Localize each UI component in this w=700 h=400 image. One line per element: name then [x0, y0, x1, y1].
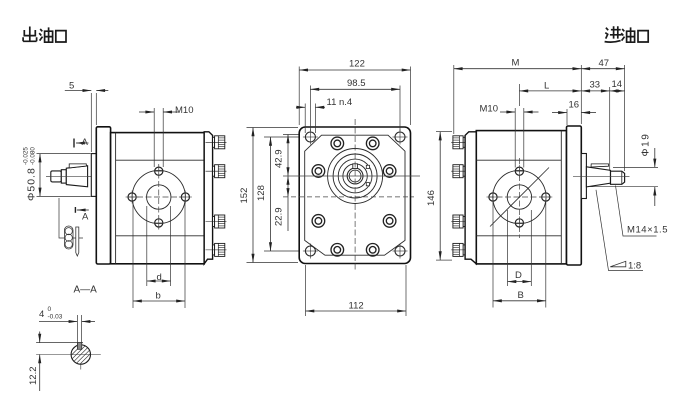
svg-text:14: 14 [612, 79, 623, 90]
svg-text:A—A: A—A [74, 285, 98, 296]
svg-text:b: b [156, 291, 161, 302]
svg-text:47: 47 [599, 58, 610, 69]
svg-text:-0.03: -0.03 [48, 314, 63, 321]
svg-text:152: 152 [239, 188, 250, 204]
svg-text:A: A [82, 137, 89, 148]
svg-text:11 n.4: 11 n.4 [327, 97, 353, 108]
svg-text:D: D [515, 270, 522, 281]
svg-text:42.9: 42.9 [274, 150, 285, 169]
svg-text:B: B [518, 290, 524, 301]
svg-text:12.2: 12.2 [28, 367, 39, 386]
svg-text:Φ19: Φ19 [641, 133, 652, 157]
svg-text:112: 112 [349, 301, 364, 312]
svg-text:98.5: 98.5 [347, 78, 366, 89]
svg-text:M10: M10 [175, 105, 193, 116]
svg-text:22.9: 22.9 [274, 208, 285, 227]
svg-text:-0.025: -0.025 [23, 147, 30, 165]
svg-text:0: 0 [48, 306, 52, 313]
svg-text:M10: M10 [480, 104, 498, 115]
svg-text:M: M [512, 58, 520, 69]
svg-text:A: A [82, 212, 89, 223]
svg-text:4: 4 [39, 309, 44, 320]
svg-text:122: 122 [349, 59, 365, 70]
svg-text:1:8: 1:8 [628, 261, 641, 272]
svg-text:Φ50.8: Φ50.8 [26, 167, 38, 201]
svg-text:L: L [544, 81, 549, 92]
svg-text:128: 128 [256, 185, 267, 201]
svg-text:146: 146 [426, 190, 437, 206]
svg-text:M14×1.5: M14×1.5 [627, 225, 668, 236]
svg-text:5: 5 [69, 81, 74, 92]
svg-text:-0.080: -0.080 [30, 147, 37, 165]
svg-text:16: 16 [569, 100, 580, 111]
svg-text:33: 33 [590, 80, 601, 91]
